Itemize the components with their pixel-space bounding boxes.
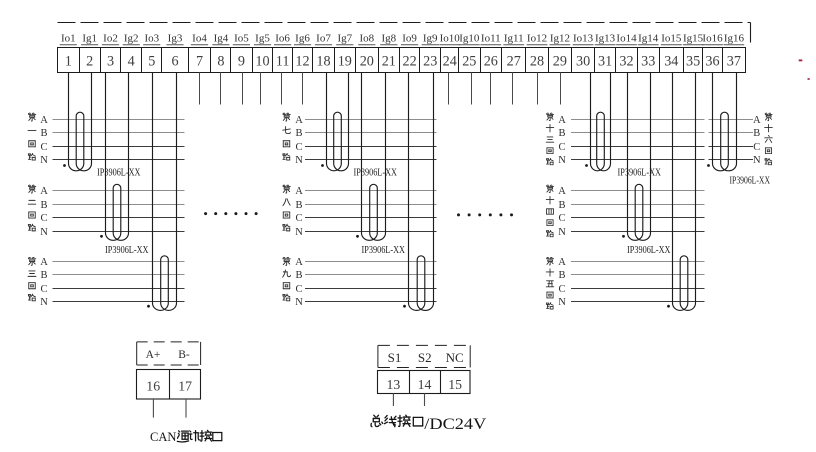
svg-text:A: A [40, 186, 48, 197]
svg-text:N: N [558, 155, 566, 166]
svg-text:21: 21 [382, 53, 396, 69]
svg-text:25: 25 [462, 53, 476, 69]
svg-text:2: 2 [86, 53, 93, 69]
svg-text:B: B [753, 128, 760, 139]
svg-text:N: N [295, 297, 303, 308]
svg-text:C: C [40, 213, 47, 224]
svg-text:A: A [558, 115, 566, 126]
svg-text:Io12: Io12 [527, 33, 547, 45]
svg-text:B: B [295, 200, 302, 211]
svg-text:5: 5 [148, 53, 155, 69]
svg-text:A: A [40, 115, 48, 126]
svg-text:37: 37 [727, 53, 741, 69]
svg-text:Ig14: Ig14 [638, 33, 659, 45]
svg-text:B: B [40, 200, 47, 211]
svg-text:B: B [295, 270, 302, 281]
svg-text:Io10: Io10 [440, 33, 461, 45]
svg-text:31: 31 [598, 53, 612, 69]
svg-text:Ig4: Ig4 [214, 33, 229, 45]
svg-text:Ig15: Ig15 [683, 33, 704, 45]
svg-text:S2: S2 [418, 350, 432, 365]
svg-text:B: B [40, 128, 47, 139]
svg-text:15: 15 [448, 377, 462, 392]
svg-text:9: 9 [238, 53, 245, 69]
svg-text:C: C [558, 284, 565, 295]
svg-text:Ig13: Ig13 [595, 33, 616, 45]
svg-text:C: C [558, 213, 565, 224]
svg-text:7: 7 [196, 53, 203, 69]
svg-text:Ig2: Ig2 [124, 33, 139, 45]
svg-text:IP3906L-XX: IP3906L-XX [627, 245, 671, 256]
svg-text:C: C [295, 284, 302, 295]
svg-text:A: A [753, 115, 761, 126]
svg-text:IP3906L-XX: IP3906L-XX [354, 168, 398, 179]
svg-text:1: 1 [65, 53, 72, 69]
svg-text:Ig16: Ig16 [724, 33, 745, 45]
svg-text:IP3906L-XX: IP3906L-XX [730, 176, 771, 187]
svg-text:A: A [295, 186, 303, 197]
svg-text:19: 19 [338, 53, 352, 69]
svg-text:B-: B- [178, 349, 190, 361]
svg-text:Ig8: Ig8 [381, 33, 396, 45]
svg-text:NC: NC [446, 350, 464, 365]
svg-text:18: 18 [316, 53, 330, 69]
svg-text:A+: A+ [146, 349, 161, 361]
svg-text:B: B [558, 200, 565, 211]
svg-text:30: 30 [576, 53, 590, 69]
svg-text:IP3906L-XX: IP3906L-XX [618, 168, 662, 179]
svg-text:Ig3: Ig3 [168, 33, 183, 45]
svg-text:A: A [295, 115, 303, 126]
svg-text:N: N [295, 227, 303, 238]
svg-text:10: 10 [255, 53, 269, 69]
svg-text:Io5: Io5 [234, 33, 249, 45]
svg-text:Ig6: Ig6 [295, 33, 310, 45]
svg-text:4: 4 [128, 53, 135, 69]
svg-text:Ig7: Ig7 [337, 33, 352, 45]
svg-text:Io6: Io6 [275, 33, 290, 45]
svg-text:S1: S1 [388, 350, 402, 365]
svg-text:36: 36 [705, 53, 719, 69]
svg-text:17: 17 [178, 379, 192, 394]
svg-text:IP3906L-XX: IP3906L-XX [97, 168, 141, 179]
svg-text:N: N [40, 155, 48, 166]
svg-text:Io4: Io4 [192, 33, 207, 45]
svg-text:N: N [753, 155, 761, 166]
svg-text:B: B [40, 270, 47, 281]
svg-text:CAN: CAN [150, 430, 176, 444]
svg-text:Ig11: Ig11 [504, 33, 524, 45]
svg-text:A: A [40, 257, 48, 268]
svg-text:Io11: Io11 [481, 33, 501, 45]
svg-text:Ig5: Ig5 [255, 33, 270, 45]
svg-text:N: N [558, 297, 566, 308]
svg-text:N: N [558, 227, 566, 238]
svg-text:B: B [558, 270, 565, 281]
svg-text:IP3906L-XX: IP3906L-XX [105, 245, 149, 256]
svg-text:Io14: Io14 [616, 33, 637, 45]
svg-text:Io2: Io2 [103, 33, 118, 45]
svg-text:23: 23 [423, 53, 437, 69]
svg-text:Io15: Io15 [661, 33, 682, 45]
svg-text:Io1: Io1 [61, 33, 76, 45]
svg-text:35: 35 [686, 53, 700, 69]
svg-text:C: C [295, 142, 302, 153]
svg-text:C: C [40, 284, 47, 295]
svg-text:A: A [558, 186, 566, 197]
svg-text:A: A [295, 257, 303, 268]
svg-text:13: 13 [387, 377, 401, 392]
svg-text:22: 22 [403, 53, 417, 69]
svg-text:14: 14 [418, 377, 432, 392]
svg-text:Io7: Io7 [316, 33, 331, 45]
svg-text:Ig1: Ig1 [82, 33, 97, 45]
svg-text:C: C [558, 142, 565, 153]
svg-text:33: 33 [641, 53, 655, 69]
svg-text:Ig12: Ig12 [550, 33, 570, 45]
svg-text:C: C [40, 142, 47, 153]
svg-text:Ig10: Ig10 [459, 33, 480, 45]
svg-text:34: 34 [664, 53, 678, 69]
svg-text:26: 26 [484, 53, 498, 69]
svg-text:28: 28 [530, 53, 544, 69]
svg-text:N: N [295, 155, 303, 166]
svg-text:C: C [753, 142, 760, 153]
svg-text:IP3906L-XX: IP3906L-XX [362, 245, 406, 256]
svg-text:N: N [40, 227, 48, 238]
svg-text:Io3: Io3 [144, 33, 159, 45]
svg-text:3: 3 [107, 53, 114, 69]
svg-text:Ig9: Ig9 [423, 33, 438, 45]
svg-text:B: B [295, 128, 302, 139]
svg-text:/DC24V: /DC24V [424, 416, 487, 433]
svg-text:11: 11 [276, 53, 290, 69]
svg-text:12: 12 [295, 53, 309, 69]
svg-text:B: B [558, 128, 565, 139]
svg-text:24: 24 [443, 53, 457, 69]
svg-text:8: 8 [217, 53, 224, 69]
svg-text:32: 32 [619, 53, 633, 69]
svg-text:Io16: Io16 [702, 33, 723, 45]
svg-text:Io13: Io13 [573, 33, 594, 45]
svg-text:Io8: Io8 [359, 33, 374, 45]
svg-text:29: 29 [553, 53, 567, 69]
svg-text:A: A [558, 257, 566, 268]
svg-text:6: 6 [171, 53, 178, 69]
svg-text:Io9: Io9 [402, 33, 417, 45]
svg-text:16: 16 [146, 379, 160, 394]
svg-text:C: C [295, 213, 302, 224]
svg-text:27: 27 [507, 53, 521, 69]
svg-text:N: N [40, 297, 48, 308]
svg-text:20: 20 [360, 53, 374, 69]
